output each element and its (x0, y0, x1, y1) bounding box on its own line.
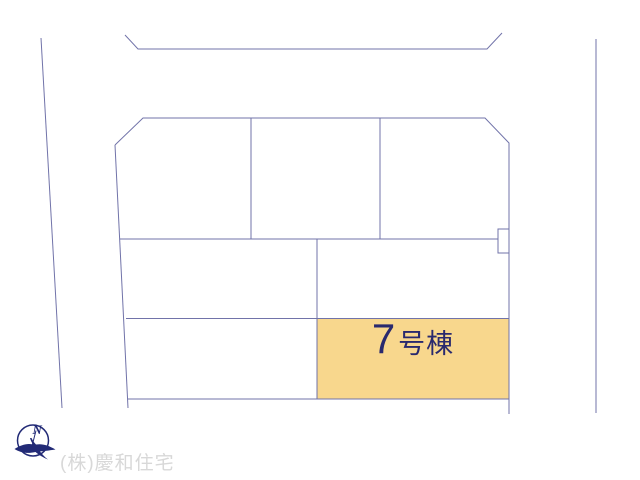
plot-map (0, 0, 640, 480)
site-plan-stage: 7 号棟 N (株)慶和住宅 (0, 0, 640, 480)
block-left-edge-line (115, 145, 128, 408)
boundary-notch (498, 229, 509, 253)
road-edge-top-line (125, 33, 502, 49)
boundary-left-line (41, 38, 62, 408)
north-label: N (32, 422, 43, 437)
highlighted-parcel-7 (317, 319, 509, 400)
company-credit: (株)慶和住宅 (60, 448, 175, 475)
